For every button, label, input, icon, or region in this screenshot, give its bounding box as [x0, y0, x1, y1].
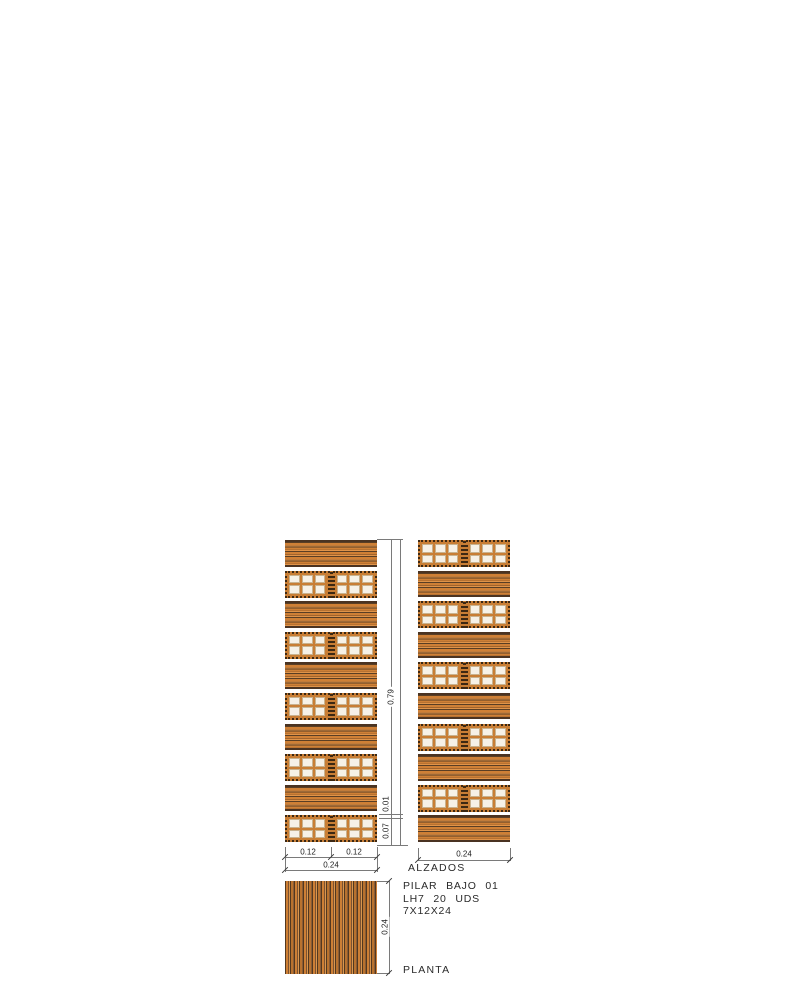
brick-hole: [448, 555, 459, 564]
brick-hole: [302, 819, 313, 828]
header-brick-pair: [285, 754, 377, 781]
stretcher-brick: [285, 662, 377, 689]
brick-hole: [337, 707, 348, 716]
brick-course-stretcher: [285, 785, 377, 816]
stretcher-brick: [418, 571, 510, 598]
brick-hole: [435, 616, 446, 625]
brick-hole: [422, 605, 433, 614]
plan-label: PLANTA: [403, 964, 450, 976]
brick-hole: [448, 799, 459, 808]
stretcher-brick: [418, 693, 510, 720]
brick-course-stretcher: [418, 632, 510, 663]
brick-hole: [362, 707, 373, 716]
header-brick: [418, 785, 463, 812]
cad-drawing-canvas: 0.79 0.01 0.07 0.12 0.12 0.24 0.24 ALZAD…: [0, 0, 800, 1000]
brick-hole: [482, 616, 493, 625]
dim-text-height-total: 0.79: [387, 687, 396, 707]
header-brick-pair: [285, 571, 377, 598]
dim-ext-joint-bottom: [379, 818, 403, 819]
brick-hole: [482, 666, 493, 675]
brick-hole: [422, 789, 433, 798]
brick-course-stretcher: [418, 693, 510, 724]
brick-hole: [422, 666, 433, 675]
dim-text-left-total: 0.24: [321, 861, 341, 870]
plan-view-hatch: [285, 881, 377, 974]
brick-hole: [337, 575, 348, 584]
brick-hole: [422, 555, 433, 564]
brick-hole: [435, 666, 446, 675]
brick-hole: [495, 789, 506, 798]
brick-hole: [482, 789, 493, 798]
brick-hole: [448, 738, 459, 747]
brick-hole: [349, 707, 360, 716]
brick-course-stretcher: [285, 540, 377, 571]
stretcher-brick: [285, 724, 377, 751]
brick-hole: [289, 585, 300, 594]
brick-course-header: [418, 540, 510, 571]
title-line-3: 7X12X24: [403, 905, 499, 918]
brick-course-stretcher: [285, 662, 377, 693]
brick-hole: [470, 789, 481, 798]
header-brick: [466, 540, 511, 567]
brick-hole: [315, 758, 326, 767]
brick-hole: [362, 830, 373, 839]
dim-ext-bottom: [377, 845, 408, 846]
brick-course-stretcher: [418, 754, 510, 785]
brick-hole: [495, 605, 506, 614]
elevations-label: ALZADOS: [408, 862, 465, 874]
brick-hole: [482, 544, 493, 553]
brick-hole: [337, 636, 348, 645]
dim-line-left-total: [285, 870, 378, 871]
dim-text-left-half-1: 0.12: [298, 848, 318, 857]
brick-course-stretcher: [285, 724, 377, 755]
brick-hole: [495, 728, 506, 737]
brick-course-header: [285, 815, 377, 846]
header-brick: [418, 601, 463, 628]
brick-hole: [362, 585, 373, 594]
brick-hole: [302, 697, 313, 706]
brick-hole: [302, 707, 313, 716]
brick-hole: [302, 830, 313, 839]
header-brick: [466, 601, 511, 628]
brick-hole: [315, 636, 326, 645]
brick-hole: [435, 789, 446, 798]
brick-hole: [435, 544, 446, 553]
brick-hole: [422, 799, 433, 808]
brick-hole: [495, 799, 506, 808]
brick-hole: [315, 819, 326, 828]
brick-hole: [422, 616, 433, 625]
dim-line-right-total: [418, 860, 511, 861]
brick-hole: [289, 646, 300, 655]
header-brick-pair: [285, 815, 377, 842]
brick-hole: [302, 585, 313, 594]
brick-hole: [337, 646, 348, 655]
brick-course-stretcher: [285, 601, 377, 632]
brick-hole: [470, 677, 481, 686]
elevation-right: [418, 540, 510, 846]
title-line-1: PILAR BAJO 01: [403, 880, 499, 893]
brick-course-stretcher: [418, 815, 510, 846]
brick-hole: [448, 605, 459, 614]
dim-tick: [386, 970, 392, 976]
stretcher-brick: [285, 785, 377, 812]
brick-hole: [289, 769, 300, 778]
dim-text-left-half-2: 0.12: [344, 848, 364, 857]
stretcher-brick: [418, 754, 510, 781]
brick-hole: [470, 799, 481, 808]
brick-hole: [435, 799, 446, 808]
dim-text-course-brick: 0.07: [382, 821, 391, 841]
brick-hole: [435, 738, 446, 747]
header-brick: [418, 724, 463, 751]
brick-hole: [337, 819, 348, 828]
brick-hole: [448, 544, 459, 553]
brick-hole: [448, 666, 459, 675]
brick-hole: [315, 585, 326, 594]
brick-hole: [482, 728, 493, 737]
header-brick: [466, 724, 511, 751]
brick-hole: [470, 555, 481, 564]
brick-hole: [470, 738, 481, 747]
brick-hole: [289, 830, 300, 839]
brick-hole: [315, 646, 326, 655]
brick-hole: [448, 728, 459, 737]
brick-course-header: [418, 785, 510, 816]
brick-hole: [435, 555, 446, 564]
stretcher-brick: [418, 632, 510, 659]
brick-hole: [337, 697, 348, 706]
brick-hole: [470, 605, 481, 614]
brick-hole: [362, 636, 373, 645]
brick-hole: [302, 758, 313, 767]
brick-hole: [349, 575, 360, 584]
brick-hole: [289, 636, 300, 645]
brick-hole: [289, 707, 300, 716]
brick-hole: [315, 769, 326, 778]
brick-hole: [482, 555, 493, 564]
header-brick-pair: [418, 724, 510, 751]
brick-hole: [302, 646, 313, 655]
brick-hole: [495, 555, 506, 564]
stretcher-brick: [418, 815, 510, 842]
brick-hole: [349, 769, 360, 778]
title-block: PILAR BAJO 01 LH7 20 UDS 7X12X24: [403, 880, 499, 918]
brick-hole: [495, 666, 506, 675]
brick-course-header: [285, 693, 377, 724]
header-brick-pair: [418, 662, 510, 689]
brick-course-header: [418, 601, 510, 632]
header-brick: [466, 662, 511, 689]
brick-hole: [315, 697, 326, 706]
brick-hole: [435, 605, 446, 614]
brick-hole: [289, 819, 300, 828]
elevation-left: [285, 540, 377, 846]
brick-hole: [422, 677, 433, 686]
header-brick-pair: [418, 785, 510, 812]
brick-hole: [302, 575, 313, 584]
header-brick: [285, 815, 330, 842]
dim-ext-top: [377, 539, 403, 540]
header-brick: [333, 815, 378, 842]
brick-hole: [448, 677, 459, 686]
brick-hole: [495, 616, 506, 625]
brick-hole: [495, 544, 506, 553]
brick-hole: [362, 758, 373, 767]
brick-hole: [349, 819, 360, 828]
brick-hole: [362, 646, 373, 655]
brick-hole: [362, 575, 373, 584]
header-brick-pair: [285, 632, 377, 659]
dim-text-joint: 0.01: [382, 794, 391, 814]
header-brick: [333, 693, 378, 720]
dim-text-plan-side: 0.24: [381, 917, 390, 937]
brick-hole: [448, 789, 459, 798]
brick-hole: [422, 544, 433, 553]
brick-hole: [495, 738, 506, 747]
brick-hole: [315, 575, 326, 584]
dim-text-right-total: 0.24: [454, 850, 474, 859]
brick-hole: [362, 819, 373, 828]
brick-hole: [289, 758, 300, 767]
brick-hole: [315, 830, 326, 839]
title-line-2: LH7 20 UDS: [403, 893, 499, 906]
brick-hole: [362, 697, 373, 706]
brick-course-header: [285, 632, 377, 663]
brick-hole: [470, 666, 481, 675]
brick-hole: [470, 544, 481, 553]
brick-hole: [422, 738, 433, 747]
header-brick: [333, 632, 378, 659]
brick-hole: [482, 677, 493, 686]
brick-hole: [337, 769, 348, 778]
brick-hole: [289, 697, 300, 706]
brick-hole: [289, 575, 300, 584]
brick-hole: [337, 585, 348, 594]
brick-hole: [470, 728, 481, 737]
brick-hole: [422, 728, 433, 737]
brick-hole: [482, 738, 493, 747]
brick-hole: [470, 616, 481, 625]
brick-hole: [349, 697, 360, 706]
header-brick: [285, 754, 330, 781]
dim-tick: [374, 867, 380, 873]
header-brick: [285, 632, 330, 659]
brick-course-header: [418, 724, 510, 755]
brick-hole: [349, 636, 360, 645]
brick-hole: [435, 677, 446, 686]
brick-hole: [362, 769, 373, 778]
brick-hole: [337, 830, 348, 839]
brick-hole: [349, 758, 360, 767]
brick-hole: [349, 830, 360, 839]
stretcher-brick: [285, 540, 377, 567]
brick-hole: [349, 585, 360, 594]
brick-hole: [495, 677, 506, 686]
dim-tick: [507, 857, 513, 863]
stretcher-brick: [285, 601, 377, 628]
brick-hole: [482, 799, 493, 808]
brick-hole: [337, 758, 348, 767]
header-brick-pair: [285, 693, 377, 720]
header-brick: [285, 693, 330, 720]
dim-line-course-chain: [400, 539, 401, 846]
header-brick: [285, 571, 330, 598]
brick-hole: [302, 636, 313, 645]
brick-course-header: [285, 571, 377, 602]
brick-course-header: [285, 754, 377, 785]
header-brick: [333, 754, 378, 781]
brick-hole: [349, 646, 360, 655]
header-brick: [466, 785, 511, 812]
brick-hole: [482, 605, 493, 614]
brick-hole: [302, 769, 313, 778]
brick-hole: [435, 728, 446, 737]
header-brick-pair: [418, 540, 510, 567]
header-brick: [333, 571, 378, 598]
brick-course-header: [418, 662, 510, 693]
brick-course-stretcher: [418, 571, 510, 602]
header-brick-pair: [418, 601, 510, 628]
header-brick: [418, 662, 463, 689]
header-brick: [418, 540, 463, 567]
brick-hole: [448, 616, 459, 625]
brick-hole: [315, 707, 326, 716]
dim-ext-joint-top: [379, 814, 403, 815]
